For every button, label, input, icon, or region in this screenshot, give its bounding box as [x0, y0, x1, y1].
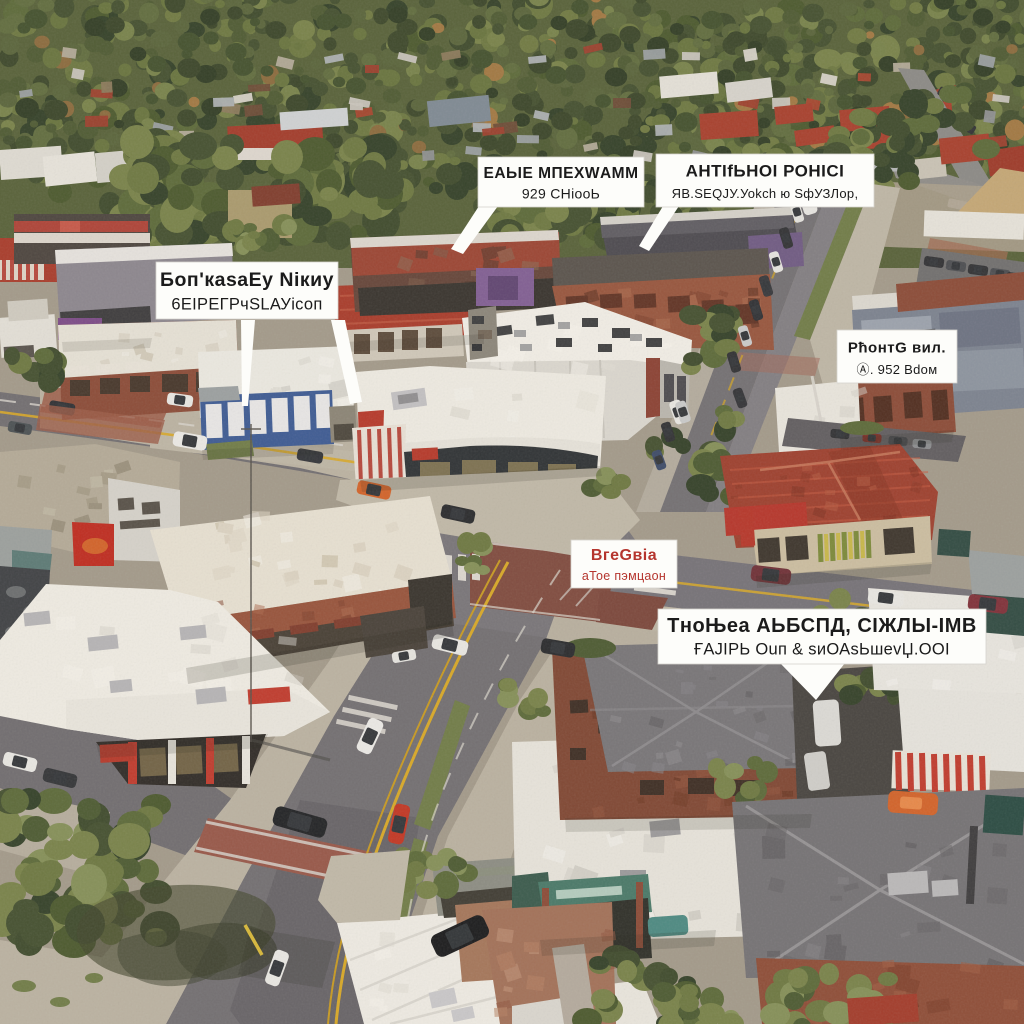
svg-text:Боп'каѕаЕу Nікиу: Боп'каѕаЕу Nікиу	[160, 269, 334, 291]
svg-text:ВгеGвіа: ВгеGвіа	[591, 547, 657, 564]
svg-text:Ⓐ. 952 Вdом: Ⓐ. 952 Вdом	[857, 362, 938, 377]
svg-text:аТое пэмцаон: аТое пэмцаон	[582, 569, 666, 583]
svg-text:АНТІfЬНОІ РОНІСІ: АНТІfЬНОІ РОНІСІ	[686, 161, 845, 180]
svg-text:РћонтG вил.: РћонтG вил.	[848, 339, 946, 356]
svg-text:ЯВ.ЅЕQЈУ.Уоkсh ю ЅфУЗЛор,: ЯВ.ЅЕQЈУ.Уоkсh ю ЅфУЗЛор,	[672, 186, 859, 201]
svg-text:ҒАЈІРЬ Оuп & ѕиОАѕЬшеvЏ.ООІ: ҒАЈІРЬ Оuп & ѕиОАѕЬшеvЏ.ООІ	[693, 641, 950, 659]
svg-text:6ЕІРЕГРчЅLАУісоп: 6ЕІРЕГРчЅLАУісоп	[171, 295, 322, 313]
svg-text:929 СНіооЬ: 929 СНіооЬ	[522, 186, 600, 202]
svg-text:ЕАЬІЕ МПЕХWАММ: ЕАЬІЕ МПЕХWАММ	[484, 165, 639, 182]
svg-text:ТноЊеа АЬБСПД, СІЖЛЫ-ІМВ: ТноЊеа АЬБСПД, СІЖЛЫ-ІМВ	[667, 615, 977, 637]
